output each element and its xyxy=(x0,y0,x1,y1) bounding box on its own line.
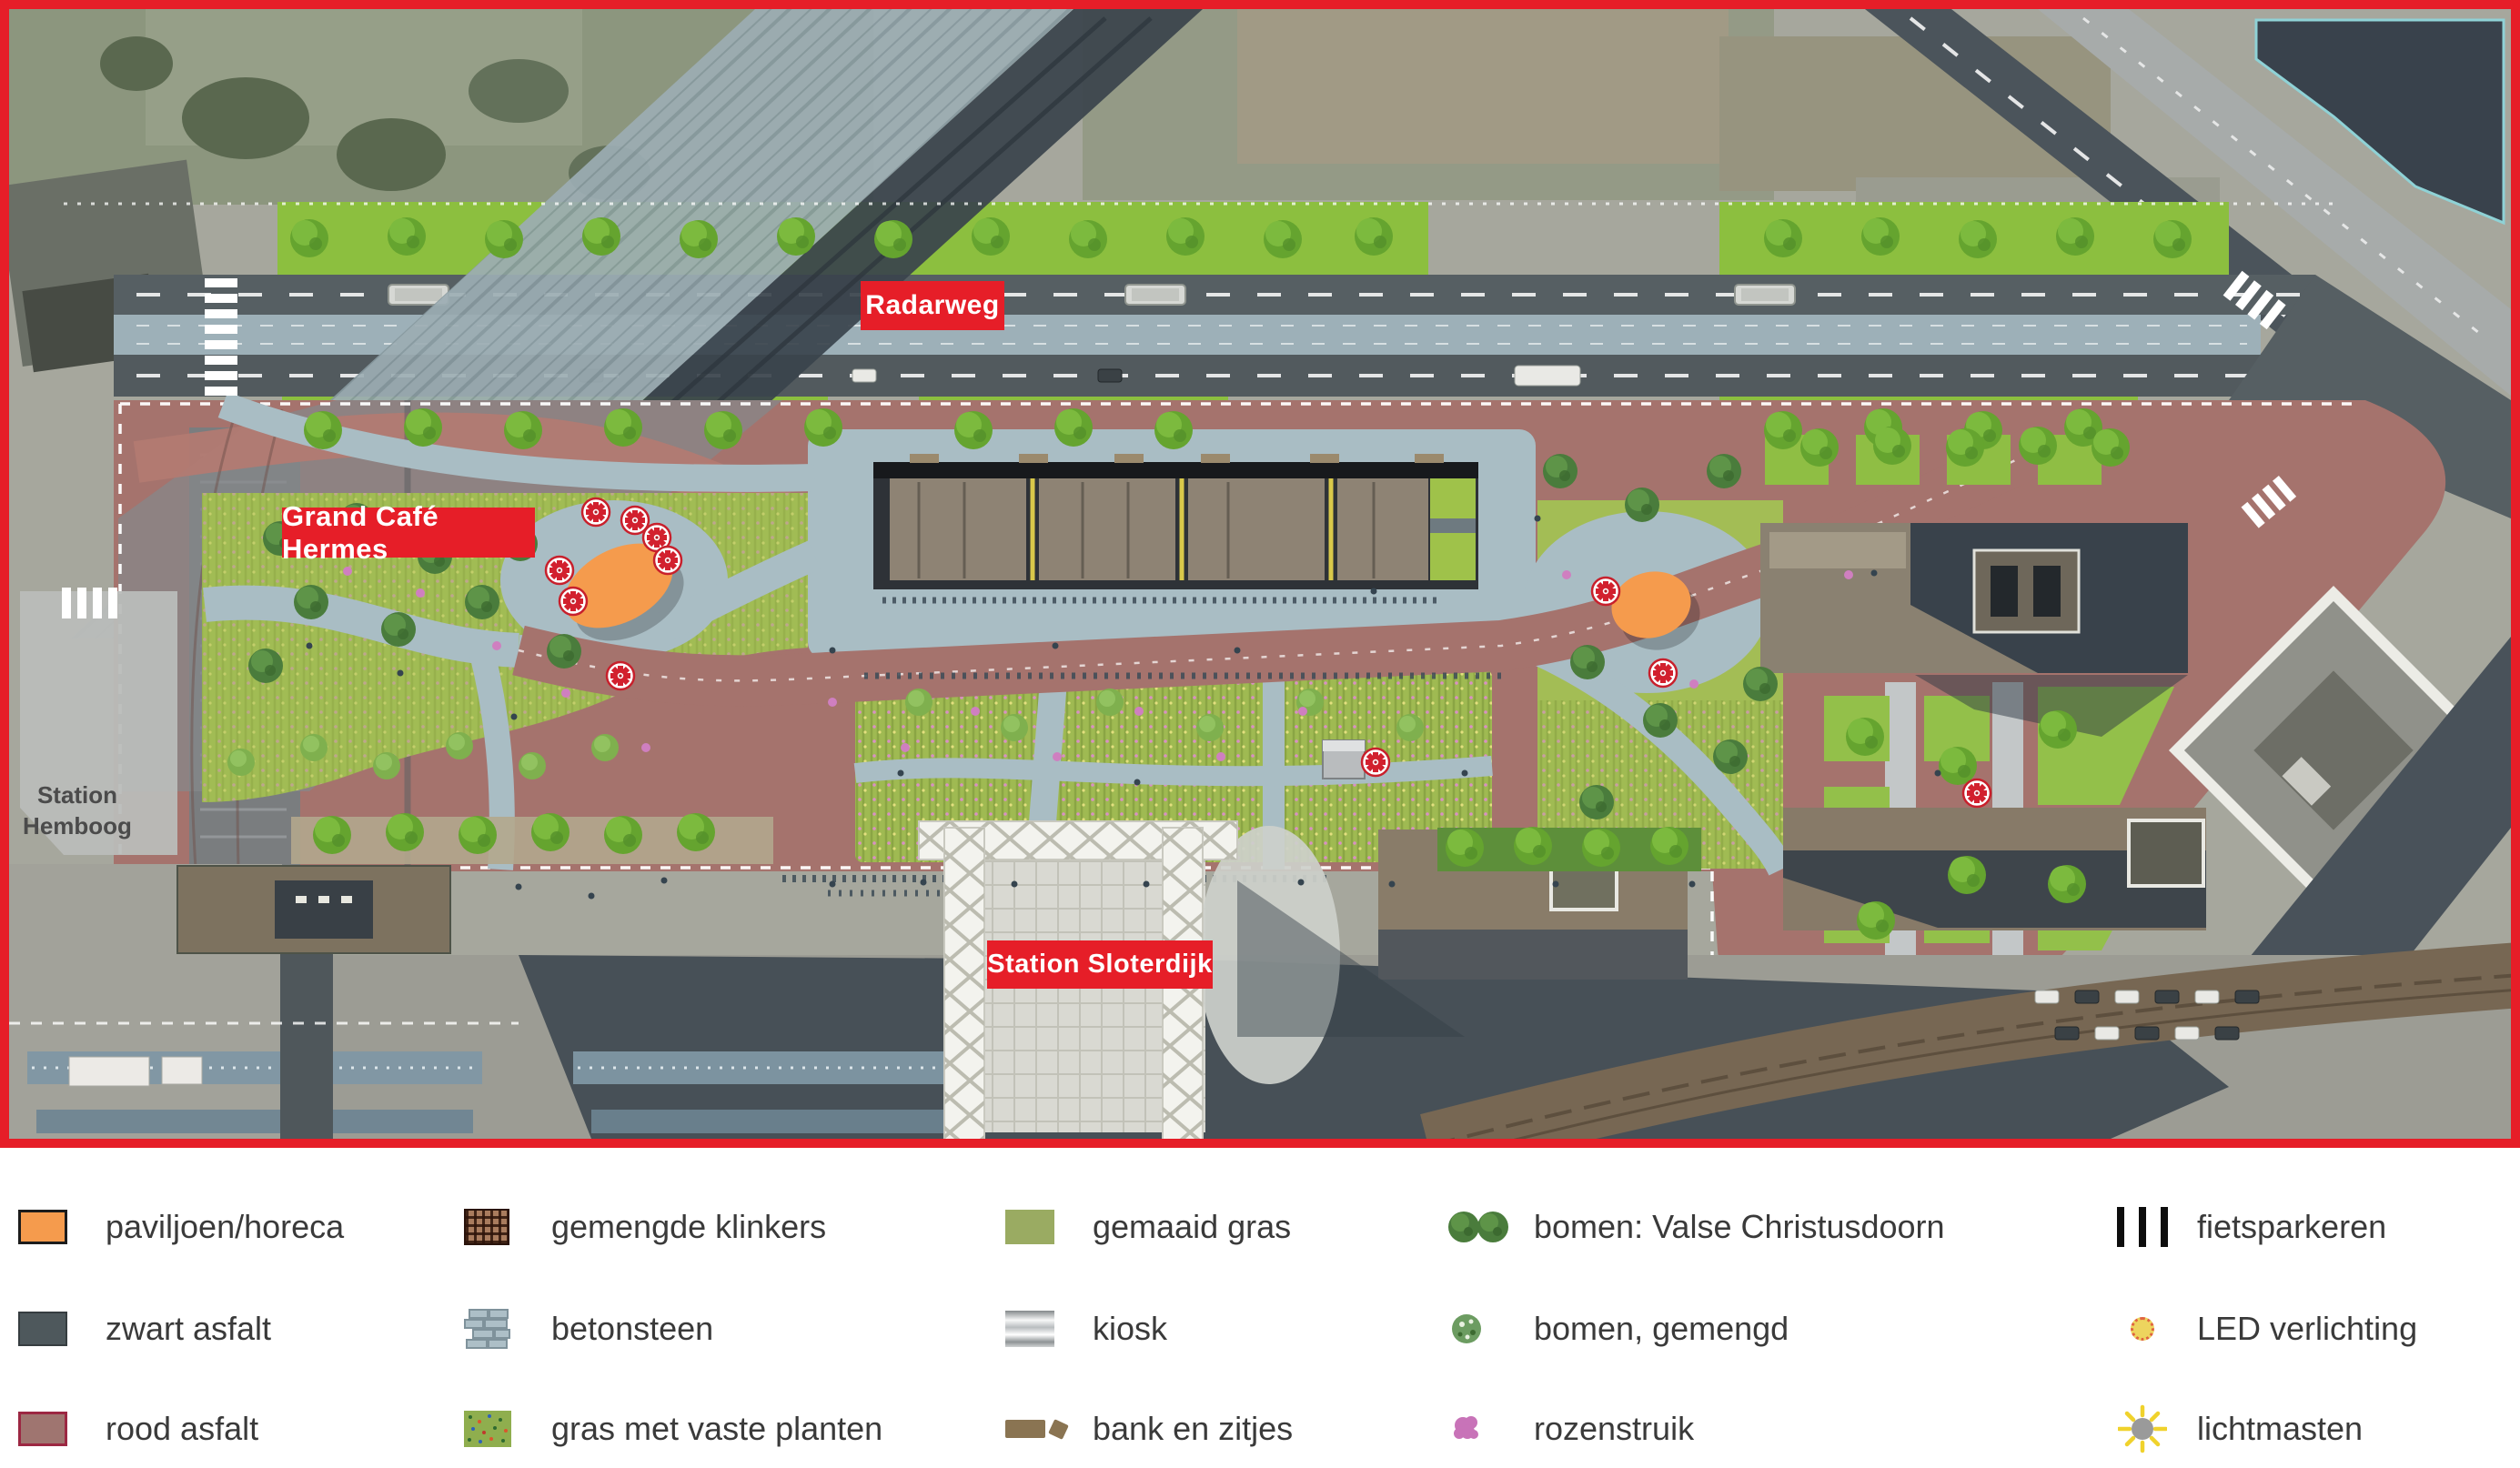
label-station-sloterdijk: Station Sloterdijk xyxy=(987,940,1213,989)
trees-christusdoorn-icon xyxy=(1446,1208,1512,1246)
label-station-hemboog: Station Hemboog xyxy=(18,780,136,842)
legend-item-kiosk: kiosk xyxy=(1005,1295,1167,1362)
legend-item-rozenstruik: rozenstruik xyxy=(1446,1395,1694,1463)
legend-item-gemaaid-gras: gemaaid gras xyxy=(1005,1193,1291,1261)
legend-item-zwart-asfalt: zwart asfalt xyxy=(18,1295,271,1362)
led-lighting-icon xyxy=(2131,1317,2154,1341)
site-plan xyxy=(9,9,2511,1139)
legend-item-bomen-christusdoorn: bomen: Valse Christusdoorn xyxy=(1446,1193,1945,1261)
red-asphalt-swatch xyxy=(18,1412,67,1446)
black-asphalt-swatch xyxy=(18,1312,67,1346)
page: Radarweg Grand Café Hermes Station Slote… xyxy=(0,0,2520,1468)
legend-item-fietsparkeren: fietsparkeren xyxy=(2088,1193,2386,1261)
label-radarweg: Radarweg xyxy=(861,281,1004,330)
pavilion-swatch xyxy=(18,1210,67,1244)
trees-mixed-icon xyxy=(1446,1309,1487,1349)
legend-item-gras-vaste-planten: gras met vaste planten xyxy=(464,1395,882,1463)
site-plan-frame: Radarweg Grand Café Hermes Station Slote… xyxy=(0,0,2520,1148)
sunken-bus-platforms xyxy=(873,454,1478,589)
bike-parking-icon xyxy=(2117,1207,2168,1247)
legend-item-betonsteen: betonsteen xyxy=(464,1295,713,1362)
label-grand-cafe-hermes: Grand Café Hermes xyxy=(282,508,535,558)
legend-item-bomen-gemengd: bomen, gemengd xyxy=(1446,1295,1789,1362)
concrete-stone-swatch xyxy=(464,1308,511,1350)
kiosk-swatch xyxy=(1005,1311,1054,1347)
legend-item-paviljoen: paviljoen/horeca xyxy=(18,1193,344,1261)
light-mast-icon xyxy=(2118,1404,2167,1453)
legend-item-bank-en-zitjes: bank en zitjes xyxy=(1005,1395,1293,1463)
bench-seating-swatch xyxy=(1005,1420,1066,1438)
mixed-clinkers-swatch xyxy=(464,1209,509,1245)
mown-grass-swatch xyxy=(1005,1210,1054,1244)
legend-item-gemengde-klinkers: gemengde klinkers xyxy=(464,1193,826,1261)
legend-item-lichtmasten: lichtmasten xyxy=(2088,1395,2363,1463)
legend-item-rood-asfalt: rood asfalt xyxy=(18,1395,258,1463)
legend-item-led-verlichting: LED verlichting xyxy=(2088,1295,2417,1362)
rose-bush-icon xyxy=(1446,1409,1487,1449)
grass-perennials-swatch xyxy=(464,1411,511,1447)
